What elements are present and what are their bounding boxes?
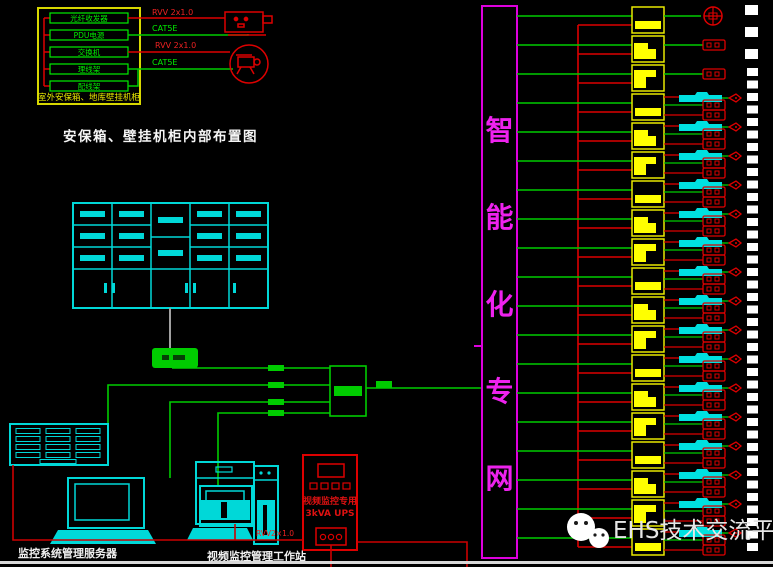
trunk-label: 智能化专网 (485, 114, 513, 495)
ups-label-2: 3kVA UPS (305, 509, 354, 519)
drawer-handle (80, 255, 105, 261)
trunk-char: 智 (485, 114, 513, 147)
uplink-connector (376, 381, 392, 388)
trunk-char: 专 (485, 375, 513, 408)
module-fill (635, 369, 661, 377)
camera-module-box (632, 268, 664, 294)
border-dash (747, 318, 758, 326)
camera-module-box (632, 355, 664, 381)
drawer-handle (197, 233, 222, 239)
camera-icon (703, 197, 725, 207)
wall-screen (46, 429, 70, 434)
door-handle (104, 283, 107, 293)
wall-screen (40, 460, 76, 464)
monitor-1-screen (75, 484, 129, 520)
border-dash (747, 343, 758, 351)
ir-camera-icon (729, 181, 741, 189)
cctv-camera-icon (230, 45, 268, 83)
border-dash (747, 168, 758, 176)
border-dash (747, 481, 758, 489)
border-dash (747, 306, 758, 314)
camera-icon (703, 284, 725, 294)
hub-marking (162, 355, 169, 360)
drawer-handle (80, 233, 105, 239)
workstation-caption: 视频监控管理工作站 (207, 549, 306, 563)
patch-connector (268, 399, 284, 405)
drawer-handle (80, 211, 105, 217)
wall-screen (76, 453, 100, 458)
intelligent-network-trunk: 智能化专网 (474, 6, 517, 558)
wall-cabinet-diagram: 光纤收发器PDU电源交换机理线架配线架 室外安保箱、地库壁挂机柜 RVV 2x1… (38, 8, 272, 145)
wire-label-power-2: RVV 2x1.0 (155, 41, 196, 50)
ir-camera-icon (729, 384, 741, 392)
device-bar-list: 光纤收发器PDU电源交换机理线架配线架 (50, 13, 128, 91)
patch-connector (268, 382, 284, 388)
drawer-handle (158, 250, 183, 256)
wire-label-data-2: CAT5E (152, 58, 177, 67)
module-fill (634, 130, 656, 146)
border-dash (747, 368, 758, 376)
border-dash (747, 143, 758, 151)
hub-marking (173, 355, 185, 360)
drawer-handle (197, 211, 222, 217)
dome-camera-icon (704, 7, 722, 25)
border-dash (747, 406, 758, 414)
cabinet-power-bus (44, 18, 50, 86)
border-dash (747, 81, 758, 89)
cad-canvas: 光纤收发器PDU电源交换机理线架配线架 室外安保箱、地库壁挂机柜 RVV 2x1… (0, 0, 773, 567)
ir-camera-icon (729, 442, 741, 450)
border-dash-large (745, 27, 758, 37)
module-fill (634, 418, 656, 436)
border-dash (747, 393, 758, 401)
trunk-char: 化 (485, 288, 513, 321)
camera-icon (703, 139, 725, 149)
drawer-handle (236, 233, 261, 239)
camera-icon (703, 342, 725, 352)
device-bar-label: 理线架 (78, 64, 101, 74)
trunk-char: 网 (485, 462, 513, 495)
ups-cabinet: 视频监控专用 3kVA UPS (303, 455, 357, 550)
border-dash (747, 68, 758, 76)
border-dash (747, 543, 758, 551)
module-fill (634, 391, 656, 407)
camera-module-box (632, 181, 664, 207)
wall-screen (16, 437, 40, 442)
cable-label: RVV2×1.0 (256, 529, 294, 538)
wire-label-data-1: CAT5E (152, 24, 177, 33)
keyboard-1 (50, 530, 156, 544)
security-network-diagram: 光纤收发器PDU电源交换机理线架配线架 室外安保箱、地库壁挂机柜 RVV 2x1… (0, 0, 773, 567)
module-fill (634, 331, 656, 349)
ir-camera-icon (729, 123, 741, 131)
module-fill (634, 478, 656, 494)
wall-screen (46, 437, 70, 442)
door-handle (233, 283, 236, 293)
door-handle (193, 283, 196, 293)
border-dash (747, 293, 758, 301)
camera-distribution-column (517, 7, 741, 555)
camera-icon (703, 110, 725, 120)
border-dash (747, 493, 758, 501)
drawer-handle (119, 255, 144, 261)
ups-label-1: 视频监控专用 (303, 495, 357, 507)
ir-camera-icon (729, 413, 741, 421)
lan-wire-ws2 (218, 413, 330, 486)
device-bar-label: 交换机 (78, 47, 101, 57)
ir-camera-icon (729, 326, 741, 334)
module-fill (635, 456, 661, 464)
device-bar-label: 配线架 (78, 81, 101, 91)
module-fill (634, 157, 656, 175)
module-fill (635, 21, 661, 29)
module-fill (635, 195, 661, 203)
border-dash (747, 193, 758, 201)
border-dash (747, 418, 758, 426)
camera-icon (703, 313, 725, 323)
border-dash (747, 218, 758, 226)
ir-camera-icon (729, 355, 741, 363)
wall-screen (76, 437, 100, 442)
wall-screen (46, 445, 70, 450)
border-dash (747, 506, 758, 514)
module-fill (634, 244, 656, 262)
tower-1-slot (221, 502, 227, 518)
patch-connector (268, 365, 284, 371)
drawer-handle (158, 217, 183, 223)
ir-camera-icon (729, 210, 741, 218)
camera-icon (703, 458, 725, 468)
door-handle (112, 283, 115, 293)
border-dash (747, 156, 758, 164)
wall-cabinet-caption: 室外安保箱、地库壁挂机柜 (38, 92, 141, 103)
ir-camera-icon (729, 500, 741, 508)
wall-screen (16, 429, 40, 434)
border-dash (747, 131, 758, 139)
border-dash (747, 331, 758, 339)
ir-camera-icon (729, 268, 741, 276)
camera-icon (703, 429, 725, 439)
module-fill (634, 304, 656, 320)
drawer-handle (197, 255, 222, 261)
ir-camera-icon (729, 94, 741, 102)
border-dash (747, 281, 758, 289)
border-dash (747, 93, 758, 101)
border-dash (747, 206, 758, 214)
wall-screen (16, 445, 40, 450)
border-dash (747, 256, 758, 264)
camera-icon (703, 487, 725, 497)
patch-connector (268, 410, 284, 416)
ir-camera-icon (729, 239, 741, 247)
border-dashes (745, 5, 758, 551)
module-fill (635, 282, 661, 290)
camera-icon (703, 168, 725, 178)
data-wire-2 (128, 69, 233, 86)
watermark-text: EHS技术交流平台 (613, 518, 773, 544)
power-socket-icon (225, 12, 272, 35)
border-dash (747, 181, 758, 189)
camera-icon (703, 40, 725, 50)
ir-camera-icon (729, 152, 741, 160)
video-wall (10, 424, 108, 465)
drawer-handle (119, 211, 144, 217)
core-switch-module (334, 386, 362, 396)
camera-module-box (632, 442, 664, 468)
bottom-divider (0, 561, 773, 564)
module-fill (634, 70, 656, 88)
border-dash (747, 106, 758, 114)
lan-wire-videowall (108, 385, 330, 424)
border-dash (747, 381, 758, 389)
border-dash (747, 468, 758, 476)
camera-icon (703, 226, 725, 236)
door-handle (185, 283, 188, 293)
camera-icon (703, 545, 725, 555)
keyboard-2 (187, 528, 253, 540)
video-wall-screens (16, 429, 100, 464)
camera-module-box (632, 94, 664, 120)
border-dash (747, 431, 758, 439)
module-fill (634, 217, 656, 233)
trunk-char: 能 (485, 201, 513, 234)
lan-wiring (108, 348, 482, 486)
ir-camera-icon (729, 297, 741, 305)
wall-screen (46, 453, 70, 458)
border-dash-large (745, 49, 758, 59)
border-dash (747, 443, 758, 451)
server-caption: 监控系统管理服务器 (18, 546, 118, 560)
camera-module-box (632, 7, 664, 33)
camera-icon (703, 255, 725, 265)
border-dash (747, 456, 758, 464)
camera-icon (703, 69, 725, 79)
device-bar-label: 光纤收发器 (70, 13, 108, 23)
drawer-handle (236, 255, 261, 261)
module-fill (634, 43, 656, 59)
ups-display (318, 464, 344, 477)
device-bar-label: PDU电源 (74, 30, 105, 40)
module-fill (635, 543, 661, 551)
border-dash (747, 243, 758, 251)
cabinet-elevation (73, 203, 268, 308)
wall-screen (76, 445, 100, 450)
border-dash-large (745, 5, 758, 15)
module-fill (635, 108, 661, 116)
border-dash (747, 356, 758, 364)
camera-icon (703, 371, 725, 381)
drawer-handle (119, 233, 144, 239)
diagram-title: 安保箱、壁挂机柜内部布置图 (63, 128, 258, 145)
border-dash (747, 118, 758, 126)
border-dash (747, 268, 758, 276)
wire-label-power-1: RVV 2x1.0 (152, 8, 193, 17)
drawer-handle (236, 211, 261, 217)
wall-screen (16, 453, 40, 458)
border-dash (747, 231, 758, 239)
ir-camera-icon (729, 471, 741, 479)
wall-screen (76, 429, 100, 434)
camera-icon (703, 400, 725, 410)
